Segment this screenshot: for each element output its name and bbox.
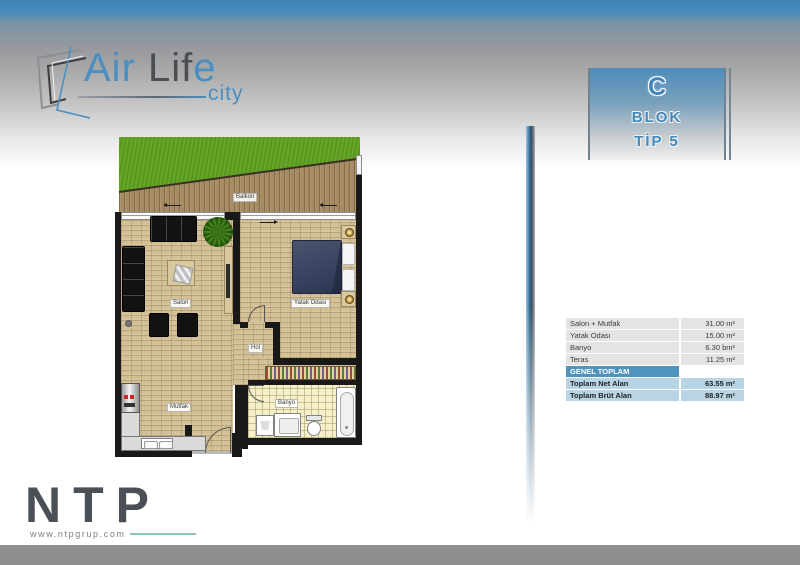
coffee-table-decor [172,264,193,284]
stove-burner-2 [130,395,134,399]
window-arrow-left [167,205,181,206]
block-type-badge: C BLOK TİP 5 [588,68,726,160]
brand-wordmark: Air Life [84,48,217,88]
table-total-row: Toplam Brüt Alan 88.97 m² [566,390,744,401]
plant [203,217,233,247]
table-row: Yatak Odası 15.00 m² [566,330,744,341]
wall-bath-top [248,380,356,385]
wall-right-cap [356,155,362,175]
loveseat [150,216,197,242]
total-value: 88.97 m² [681,390,744,401]
total-label: Toplam Net Alan [566,378,679,389]
ntp-logo: NTP [25,480,161,530]
kitchen-sink [141,438,173,449]
bedroom-window [240,212,356,220]
sofa [122,246,145,312]
table-row: Banyo 6.30 bm² [566,342,744,353]
bathtub [336,387,356,438]
brand-city: city [208,82,244,106]
armchair-right [177,313,198,337]
vertical-divider [526,126,535,524]
website-underline [130,533,196,535]
row-label: Yatak Odası [566,330,679,341]
bathtub-drain [345,426,348,429]
row-label: Banyo [566,342,679,353]
brand-underline [78,96,206,98]
floor-plan: Balkon Salon Yatak Odası Hol Mutfak Bany… [115,133,365,468]
wall-bedroom-bottom [273,358,362,365]
vanity [274,413,301,437]
bed [292,240,342,294]
bedroom-slide-arrow [260,222,274,223]
wall-right [356,175,362,445]
brand-lif: Lif [136,46,193,90]
sink-basin-right [159,441,173,449]
armchair-left [149,313,169,337]
label-banyo: Banyo [275,399,298,408]
coffee-table [167,260,195,286]
nightstand-bottom [341,291,356,307]
badge-tip-label: TİP 5 [634,133,680,150]
table-total-row: Toplam Net Alan 63.55 m² [566,378,744,389]
row-value: 15.00 m² [681,330,744,341]
wall-bath-bottom [242,438,362,445]
label-balkon: Balkon [233,193,257,202]
brand-air: Air [84,46,136,90]
badge-blok-label: BLOK [632,109,683,126]
door-stopper [125,320,132,327]
wardrobe [265,366,356,380]
label-mutfak: Mutfak [167,403,191,412]
total-header-label: GENEL TOPLAM [566,366,679,377]
stove-burner-1 [124,395,128,399]
label-salon: Salon [170,299,191,308]
total-value: 63.55 m² [681,378,744,389]
window-arrow-right [323,205,337,206]
lamp-top [345,228,354,237]
footer-bar [0,545,800,565]
wall-salon-bedroom [233,212,240,324]
row-label: Salon + Mutfak [566,318,679,329]
bidet [256,415,274,436]
pillow-top [342,243,355,265]
wall-hall-top-left [240,322,248,328]
label-yatak-odasi: Yatak Odası [291,299,330,308]
badge-block-letter: C [648,73,666,102]
wall-kitchen-bottom [115,451,191,457]
area-table: Salon + Mutfak 31.00 m² Yatak Odası 15.0… [566,318,744,402]
table-row: Teras 11.25 m² [566,354,744,365]
total-label: Toplam Brüt Alan [566,390,679,401]
sink-basin-left [144,441,158,449]
nightstand-top [341,225,356,239]
tv [226,264,230,298]
vanity-sink [279,418,299,434]
oven [124,403,135,407]
pillow-bottom [342,269,355,291]
label-hol: Hol [248,344,263,353]
toilet-bowl [307,421,321,436]
row-value: 11.25 m² [681,354,744,365]
lamp-bottom [345,295,354,304]
bathtub-basin [340,392,354,436]
website-row: www.ntpgrup.com [30,529,196,539]
wall-entry-right [232,433,242,457]
bidet-bowl [259,420,271,431]
table-total-header-row: GENEL TOPLAM [566,366,744,377]
row-value: 31.00 m² [681,318,744,329]
website-url: www.ntpgrup.com [30,529,126,539]
row-label: Teras [566,354,679,365]
total-header-value [681,366,744,377]
row-value: 6.30 bm² [681,342,744,353]
table-row: Salon + Mutfak 31.00 m² [566,318,744,329]
